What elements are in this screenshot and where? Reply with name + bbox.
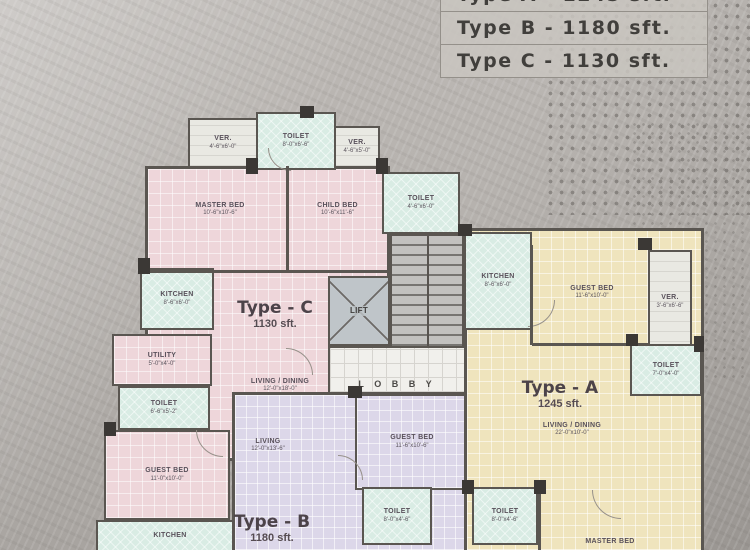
room-label: TOILET [384, 508, 411, 516]
room-label: LIVING / DINING [543, 422, 601, 430]
room-toilet-c: TOILET 6'-6"x5'-2" [118, 386, 210, 430]
room-guest-bed-a: GUEST BED 11'-6"x10'-0" [542, 285, 642, 301]
room-toilet-a-right: TOILET 7'-0"x4'-0" [630, 344, 702, 396]
room-label: KITCHEN [153, 532, 186, 540]
room-label: TOILET [492, 508, 519, 516]
room-dims: 10'-6"x11'-6" [321, 210, 354, 217]
room-dims: 4'-6"x6'-0" [210, 144, 237, 151]
column-post [300, 106, 314, 118]
column-post [458, 224, 472, 236]
lobby-label: L O B B Y [358, 379, 435, 389]
room-label: KITCHEN [481, 273, 514, 281]
room-ver-top-right: VER. 4'-6"x5'-0" [334, 126, 380, 168]
room-label: TOILET [408, 195, 435, 203]
room-dims: 11'-0"x10'-0" [150, 476, 183, 483]
room-label: MASTER BED [195, 202, 244, 210]
stair-landing-divider [427, 236, 429, 350]
column-post [626, 334, 638, 346]
room-dims: 22'-0"x10'-0" [555, 430, 589, 437]
column-post [694, 336, 704, 352]
room-label: KITCHEN [160, 291, 193, 299]
room-dims: 8'-0"x4'-6" [384, 517, 411, 524]
room-toilet-mid: TOILET 4'-6"x6'-0" [382, 172, 460, 234]
column-post [376, 158, 388, 174]
room-living-b: LIVING 12'-0"x13'-6" [228, 438, 308, 454]
column-post [348, 386, 362, 398]
column-post [462, 480, 474, 494]
unit-title-type-c: Type - C 1130 sft. [205, 298, 345, 330]
column-post [246, 158, 258, 174]
room-child-bed-c: CHILD BED 10'-6"x11'-6" [290, 202, 385, 218]
room-master-bed-a: MASTER BED [560, 538, 660, 546]
room-living-dining-a: LIVING / DINING 22'-0"x10'-0" [512, 422, 632, 438]
unit-area: 1180 sft. [250, 532, 293, 544]
room-dims: 7'-0"x4'-0" [653, 371, 680, 378]
room-label: MASTER BED [585, 538, 634, 546]
room-dims: 4'-6"x5'-0" [344, 148, 371, 155]
room-dims: 6'-6"x5'-2" [151, 409, 178, 416]
unit-title-type-a: Type - A 1245 sft. [500, 378, 620, 410]
room-ver-a: VER. 3'-6"x6'-6" [648, 250, 692, 354]
room-label: VER. [661, 294, 679, 302]
room-dims: 11'-6"x10'-0" [575, 293, 608, 300]
room-master-bed-c: MASTER BED 10'-6"x10'-6" [168, 202, 272, 218]
room-living-dining-c: LIVING / DINING 12'-0"x18'-0" [215, 378, 345, 394]
room-label: LIVING / DINING [251, 378, 309, 386]
room-dims: 12'-0"x13'-6" [251, 446, 285, 453]
room-dims: 8'-6"x6'-0" [485, 282, 512, 289]
room-label: TOILET [151, 400, 178, 408]
wall-segment [286, 166, 289, 272]
room-guest-bed-b: GUEST BED 11'-6"x10'-6" [355, 394, 469, 490]
floor-plan: VER. 4'-6"x6'-0" TOILET 8'-0"x6'-6" VER.… [0, 0, 750, 550]
wall-segment [530, 245, 533, 345]
unit-title-type-b: Type - B 1180 sft. [212, 512, 332, 544]
unit-name: Type - B [234, 512, 310, 532]
room-dims: 5'-0"x4'-0" [149, 361, 176, 368]
room-dims: 4'-6"x6'-0" [408, 204, 435, 211]
room-label: VER. [348, 139, 366, 147]
room-dims: 10'-6"x10'-6" [203, 210, 237, 217]
room-kitchen-a: KITCHEN 8'-6"x6'-0" [464, 232, 532, 330]
room-dims: 3'-6"x6'-6" [657, 303, 684, 310]
room-dims: 12'-0"x18'-0" [263, 386, 297, 393]
room-label: TOILET [653, 362, 680, 370]
unit-name: Type - C [237, 298, 313, 318]
room-label: TOILET [283, 133, 310, 141]
column-post [638, 238, 652, 250]
room-utility-c: UTILITY 5'-0"x4'-0" [112, 334, 212, 386]
lift-label: LIFT [348, 306, 370, 316]
staircase [390, 234, 464, 352]
room-kitchen-c: KITCHEN 8'-6"x6'-0" [140, 268, 214, 330]
room-dims: 8'-0"x4'-6" [492, 517, 519, 524]
room-label: UTILITY [148, 352, 177, 360]
room-label: GUEST BED [390, 434, 434, 442]
room-label: GUEST BED [570, 285, 614, 293]
unit-name: Type - A [522, 378, 598, 398]
unit-area: 1245 sft. [538, 398, 582, 410]
room-label: VER. [214, 135, 232, 143]
room-label: GUEST BED [145, 467, 189, 475]
wall-segment [538, 487, 541, 550]
column-post [534, 480, 546, 494]
room-dims: 11'-6"x10'-6" [395, 443, 428, 450]
room-toilet-a-bottom: TOILET 8'-0"x4'-6" [472, 487, 538, 545]
unit-area: 1130 sft. [253, 318, 296, 330]
room-label: LIVING [255, 438, 280, 446]
wall-segment [145, 270, 390, 273]
room-toilet-b: TOILET 8'-0"x4'-6" [362, 487, 432, 545]
room-toilet-top: TOILET 8'-0"x6'-6" [256, 112, 336, 170]
room-label: CHILD BED [317, 202, 358, 210]
column-post [138, 258, 150, 274]
room-dims: 8'-6"x6'-0" [164, 300, 191, 307]
column-post [104, 422, 116, 436]
